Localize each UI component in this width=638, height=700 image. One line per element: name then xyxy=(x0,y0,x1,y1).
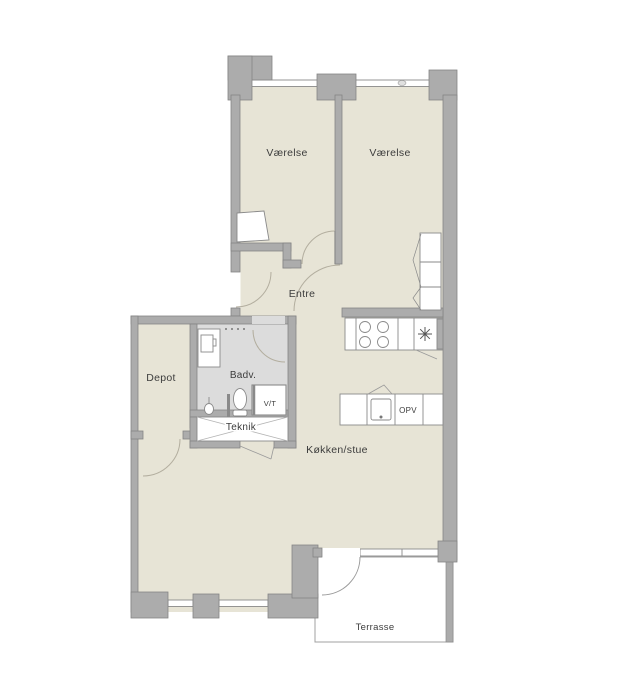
basin-icon xyxy=(205,404,214,415)
toilet-icon xyxy=(234,389,247,410)
window-bottom-left-2 xyxy=(219,600,268,607)
room-label-vt: V/T xyxy=(264,399,277,408)
wardrobe-bedroom2 xyxy=(420,233,441,310)
terrace-door-gap xyxy=(322,548,360,558)
bathroom-door-gap xyxy=(252,316,285,324)
window-bottom-right xyxy=(360,549,440,556)
floor-kitchen-strip xyxy=(296,318,443,556)
kitchen-counter-south xyxy=(340,394,443,425)
basin-divider xyxy=(227,394,230,417)
room-label-kitchen-living: Køkken/stue xyxy=(306,444,368,456)
wall-east xyxy=(443,95,457,560)
wall-bedroom1-south xyxy=(231,243,291,251)
window-bottom-left-1 xyxy=(168,600,193,607)
room-label-teknik: Teknik xyxy=(226,422,257,433)
wall-west-lower xyxy=(131,316,138,612)
wall-bedroom-divider xyxy=(335,95,342,264)
entrance-door-gap xyxy=(230,272,241,308)
room-label-terrace: Terrasse xyxy=(356,622,395,633)
room-label-bedroom1: Værelse xyxy=(266,147,307,159)
wardrobe-bedroom1 xyxy=(237,211,269,242)
label-dishwasher: OPV xyxy=(399,406,417,415)
room-label-bathroom: Badv. xyxy=(230,370,256,381)
room-label-bedroom2: Værelse xyxy=(369,147,410,159)
vent-icon xyxy=(398,81,406,86)
floor-plan-page: Værelse Værelse Entre Depot Badv. V/T Te… xyxy=(0,0,638,700)
room-label-depot: Depot xyxy=(146,372,176,384)
terrace-railing xyxy=(446,557,453,642)
wall-bathroom-east xyxy=(288,316,296,448)
room-label-entre: Entre xyxy=(289,288,316,300)
floor-plan-svg: Værelse Værelse Entre Depot Badv. V/T Te… xyxy=(0,0,638,700)
